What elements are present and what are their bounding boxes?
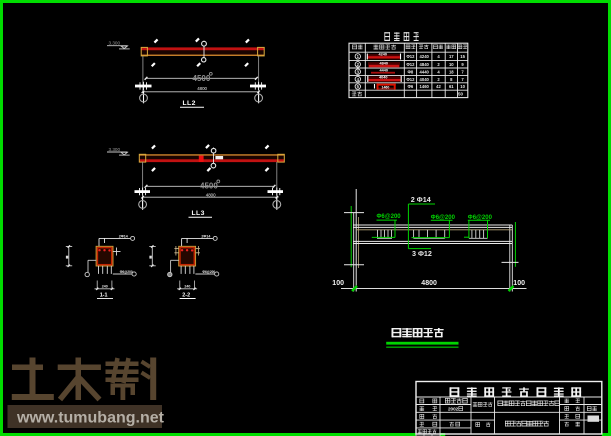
svg-text:1460: 1460: [420, 84, 430, 89]
svg-text:4800: 4800: [206, 192, 216, 197]
svg-text:Φ8: Φ8: [408, 69, 414, 74]
svg-text:4440: 4440: [420, 69, 430, 74]
svg-text:4800: 4800: [421, 280, 437, 287]
svg-text:4500: 4500: [193, 74, 211, 83]
svg-text:1460: 1460: [382, 85, 390, 89]
svg-text:2 Φ14: 2 Φ14: [411, 195, 431, 204]
svg-text:61: 61: [449, 84, 454, 89]
svg-text:2Φ14: 2Φ14: [119, 235, 128, 239]
svg-text:42: 42: [436, 84, 441, 89]
svg-text:2Φ14: 2Φ14: [201, 235, 210, 239]
svg-text:4040: 4040: [379, 76, 387, 80]
svg-text:LL2: LL2: [183, 100, 196, 107]
svg-text:www.tumubang.net: www.tumubang.net: [16, 410, 165, 427]
svg-text:4240: 4240: [379, 53, 387, 57]
svg-text:100: 100: [513, 280, 525, 287]
svg-text:Φ6@200: Φ6@200: [202, 270, 215, 274]
svg-text:4240: 4240: [420, 54, 430, 59]
svg-text:Φ12: Φ12: [406, 77, 415, 82]
svg-text:Φ12: Φ12: [406, 62, 415, 67]
svg-text:Φ6@200: Φ6@200: [377, 214, 402, 220]
svg-text:10: 10: [460, 84, 465, 89]
svg-text:3.300: 3.300: [109, 147, 121, 152]
svg-text:LL3: LL3: [192, 210, 205, 217]
svg-text:100: 100: [332, 280, 344, 287]
svg-text:10: 10: [449, 62, 454, 67]
svg-text:Φ6@200: Φ6@200: [120, 270, 133, 274]
svg-text:15: 15: [460, 54, 465, 59]
svg-text:4500: 4500: [200, 182, 218, 191]
svg-text:2002: 2002: [448, 407, 459, 412]
svg-text:4040: 4040: [420, 77, 430, 82]
svg-text:18: 18: [449, 69, 454, 74]
svg-text:Φ6: Φ6: [408, 84, 414, 89]
svg-text:4800: 4800: [197, 86, 207, 91]
svg-text:1-1: 1-1: [100, 293, 108, 299]
svg-text:50: 50: [458, 92, 463, 97]
svg-text:3.300: 3.300: [109, 41, 121, 46]
svg-text:4840: 4840: [380, 61, 388, 65]
svg-text:Φ12: Φ12: [406, 54, 415, 59]
svg-text:2-2: 2-2: [182, 293, 190, 299]
svg-text:4840: 4840: [420, 62, 430, 67]
svg-text:3 Φ12: 3 Φ12: [412, 249, 432, 258]
svg-text:17: 17: [449, 54, 454, 59]
svg-text:240: 240: [102, 285, 108, 289]
svg-text:4440: 4440: [380, 68, 388, 72]
svg-text:240: 240: [184, 285, 190, 289]
